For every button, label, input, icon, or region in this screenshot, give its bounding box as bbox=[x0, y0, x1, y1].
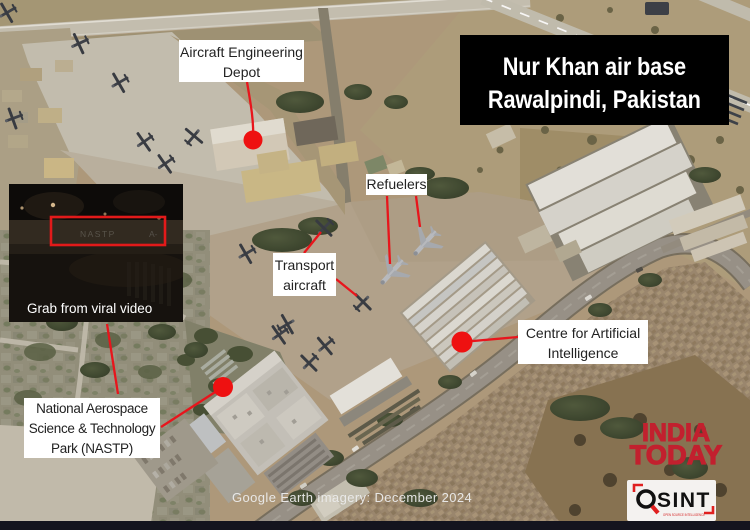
svg-text:SINT: SINT bbox=[657, 489, 711, 512]
svg-text:OPEN SOURCE INTELLIGENCE: OPEN SOURCE INTELLIGENCE bbox=[663, 513, 705, 517]
